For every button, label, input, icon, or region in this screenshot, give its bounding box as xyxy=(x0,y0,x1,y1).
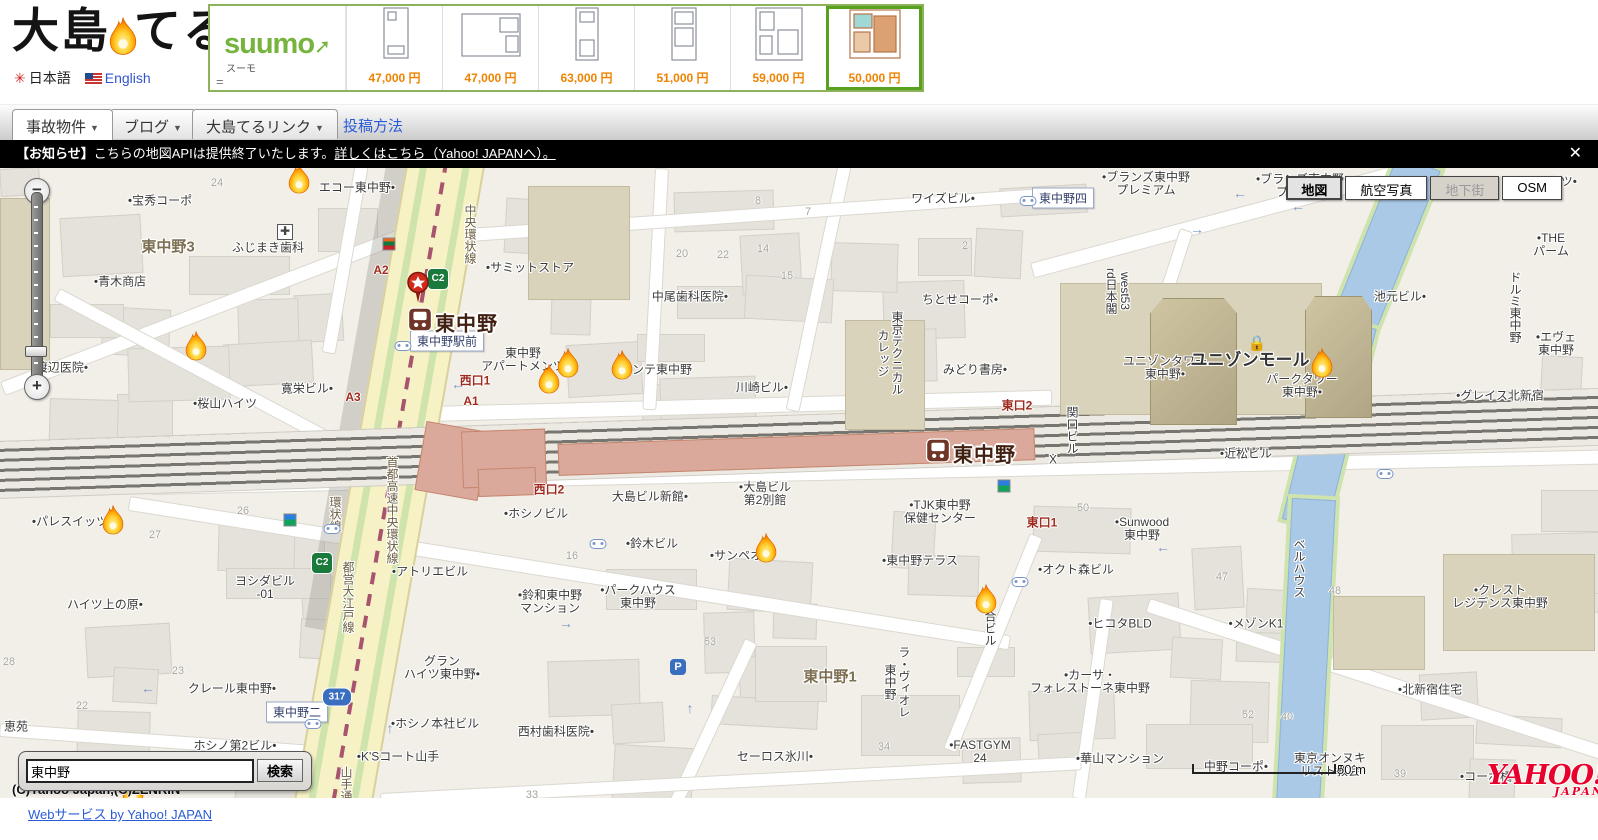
block-number: 47 xyxy=(1216,571,1228,583)
map-label: クレール東中野• xyxy=(188,683,276,696)
suumo-brand-text: suumo➚ xyxy=(224,28,330,61)
bus-stop-icon xyxy=(324,524,341,534)
station-exit-label: 東口2 xyxy=(1002,397,1033,414)
seven-eleven-icon xyxy=(383,238,396,251)
station-building xyxy=(478,467,537,497)
lock-icon: 🔒 xyxy=(1248,334,1267,352)
map-label: 山手通り xyxy=(339,766,353,798)
floorplan-thumbnail xyxy=(556,6,618,67)
map-label: ワイズビル• xyxy=(911,193,975,206)
chevron-down-icon: ▼ xyxy=(315,123,324,133)
suumo-listing-5[interactable]: 59,000 円 xyxy=(730,6,826,90)
bus-stop-icon xyxy=(1012,577,1029,587)
block-number: 34 xyxy=(878,741,890,753)
map-type-button-地図[interactable]: 地図 xyxy=(1286,176,1342,200)
map-label: 中央環状線 xyxy=(463,204,477,264)
map-label: 恵苑 xyxy=(4,721,28,734)
map-label: •パレスイッツ xyxy=(32,516,108,529)
map-label: 首都高速中央環状線 xyxy=(385,456,399,564)
block-number: 15 xyxy=(781,270,793,282)
metro-exit-icon: C2 xyxy=(311,552,333,574)
map-label: みどり書房• xyxy=(943,364,1007,377)
block-number: 7 xyxy=(805,206,811,218)
floorplan-thumbnail xyxy=(364,6,426,67)
block-number: 52 xyxy=(1242,709,1254,721)
us-flag-icon xyxy=(85,73,102,84)
station-exit-label: A1 xyxy=(463,394,478,408)
one-way-arrow-icon: → xyxy=(559,615,573,631)
one-way-arrow-icon: ← xyxy=(141,680,155,696)
map-label: エコー東中野• xyxy=(319,182,395,195)
building xyxy=(974,228,1024,280)
block-number: 50 xyxy=(1077,502,1089,514)
map-label: 都営大江戸線 xyxy=(341,561,355,633)
page-footer: Webサービス by Yahoo! JAPAN xyxy=(0,798,1598,840)
map-label: •グレイス北新宿 xyxy=(1456,390,1544,403)
chevron-down-icon: ▼ xyxy=(173,123,182,133)
block-number: 53 xyxy=(704,636,716,648)
block-number: 14 xyxy=(757,243,769,255)
listing-price: 50,000 円 xyxy=(848,69,900,86)
map-label: •東中野テラス xyxy=(882,555,958,568)
one-way-arrow-icon: ← xyxy=(1233,185,1247,201)
fire-incident-marker[interactable] xyxy=(536,363,563,399)
map-label: セーロス氷川• xyxy=(737,751,813,764)
oshimaland-page: 大島 てる ✳日本語English suumo➚ スーモ = 47,000 円4… xyxy=(0,0,1598,840)
map-label: •ホシノビル xyxy=(504,508,568,521)
bus-stop-icon xyxy=(1377,469,1394,479)
map-label: •鈴木ビル xyxy=(626,538,678,551)
station-exit-label: 西口2 xyxy=(534,481,565,498)
suumo-listing-3[interactable]: 63,000 円 xyxy=(538,6,634,90)
map-label: 東京テクニカルカレッジ xyxy=(876,311,904,395)
bus-stop-icon xyxy=(305,719,322,729)
fire-incident-marker[interactable] xyxy=(286,168,313,199)
suumo-logo[interactable]: suumo➚ スーモ = xyxy=(210,6,346,90)
lang-link-english[interactable]: English xyxy=(85,70,151,86)
train-station-icon xyxy=(926,439,950,468)
zoom-in-button[interactable]: + xyxy=(24,374,50,400)
one-way-arrow-icon: ← xyxy=(1156,539,1170,555)
block-number: 8 xyxy=(755,195,761,207)
logo-text-1: 大島 xyxy=(12,2,110,62)
map-label: •ホシノ本社ビル xyxy=(391,718,479,731)
map-label: •オクト森ビル xyxy=(1038,564,1114,577)
suumo-items: 47,000 円47,000 円63,000 円51,000 円59,000 円… xyxy=(346,6,922,90)
train-station-icon xyxy=(408,308,432,337)
map-label: ふじまき歯科 xyxy=(232,242,304,255)
block-number: 2 xyxy=(962,240,968,252)
station-name-label: 東中野 xyxy=(435,308,498,337)
notice-prefix: 【お知らせ】 xyxy=(16,146,94,161)
suumo-listing-6[interactable]: 50,000 円 xyxy=(826,6,922,90)
map-label: •ブランズ東中野プレミアム xyxy=(1102,171,1190,197)
one-way-arrow-icon: ← xyxy=(451,376,465,392)
map-label: •近松ビル xyxy=(1220,448,1272,461)
building xyxy=(1170,637,1223,681)
map-label: •大島ビル第2別館 xyxy=(739,481,791,507)
site-logo[interactable]: 大島 てる xyxy=(12,2,232,62)
map-label: •パークハウス東中野 xyxy=(600,584,676,610)
map-label: •ヒコタBLD xyxy=(1088,618,1152,631)
tab-投稿方法[interactable]: 投稿方法 xyxy=(330,109,416,139)
route-shield: 317 xyxy=(322,688,352,707)
map-type-button-OSM[interactable]: OSM xyxy=(1502,176,1562,200)
building xyxy=(1541,490,1598,532)
block-number: 24 xyxy=(211,177,223,189)
japan-sun-icon: ✳ xyxy=(14,70,26,86)
suumo-listing-1[interactable]: 47,000 円 xyxy=(346,6,442,90)
close-icon[interactable]: ✕ xyxy=(1569,140,1582,168)
map-label: ハイツ上の原• xyxy=(67,599,143,612)
station-exit-label: A3 xyxy=(345,390,360,404)
map-label: ちとせコーポ• xyxy=(922,294,998,307)
floorplan-thumbnail xyxy=(844,6,906,67)
familymart-icon xyxy=(284,514,297,527)
map-label: 東中野1 xyxy=(803,671,856,684)
map-label: west53rd日本閣 xyxy=(1104,268,1132,315)
tab-ブログ[interactable]: ブログ▼ xyxy=(110,109,196,139)
map-label: •TJK東中野保健センター xyxy=(904,499,976,525)
block-number: 23 xyxy=(172,665,184,677)
block-number: 16 xyxy=(566,550,578,562)
fire-incident-marker[interactable] xyxy=(609,349,636,385)
building xyxy=(611,702,665,745)
listing-price: 47,000 円 xyxy=(368,69,420,86)
yahoo-japan-logo[interactable]: YAHOO! JAPAN xyxy=(1487,760,1598,798)
map-label: 西村歯科医院• xyxy=(518,726,594,739)
map-label: •アトリエビル xyxy=(392,566,468,579)
map-label: •カーサ・フォレストーネ東中野 xyxy=(1030,669,1150,695)
block-number: 22 xyxy=(76,700,88,712)
map-label: •THEパーム xyxy=(1533,232,1569,258)
bus-stop-icon xyxy=(590,539,607,549)
map-search-box: 検索 xyxy=(18,751,312,791)
map-label: X xyxy=(1049,454,1057,467)
district-boxed-label: 東中野四 xyxy=(1032,188,1094,209)
map-label: 関口ビル xyxy=(1065,406,1079,454)
block-number: 28 xyxy=(3,656,15,668)
suumo-listing-4[interactable]: 51,000 円 xyxy=(634,6,730,90)
bus-stop-icon xyxy=(1020,196,1037,206)
hospital-icon: ✚ xyxy=(277,224,293,240)
fire-incident-marker[interactable] xyxy=(183,330,210,366)
map-label: 大島ビル新館• xyxy=(612,491,688,504)
map-label: •鈴和東中野マンション xyxy=(518,589,582,615)
suumo-brand-sub: スーモ xyxy=(226,60,256,75)
equals-mark: = xyxy=(216,74,224,89)
search-input[interactable] xyxy=(26,759,254,783)
tab-事故物件[interactable]: 事故物件▼ xyxy=(12,109,113,140)
listing-price: 59,000 円 xyxy=(752,69,804,86)
map-label: •K'Sコート山手 xyxy=(357,751,440,764)
map-label: •メゾンK1 xyxy=(1229,618,1284,631)
map-label: •エヴェ東中野 xyxy=(1536,331,1576,357)
map-type-button-航空写真[interactable]: 航空写真 xyxy=(1345,176,1427,200)
yahoo-webservice-link[interactable]: Webサービス by Yahoo! JAPAN xyxy=(28,804,212,823)
lang-link-japanese[interactable]: ✳日本語 xyxy=(14,70,71,86)
map-label: 中尾歯科医院• xyxy=(652,291,728,304)
one-way-arrow-icon: → xyxy=(1190,221,1204,237)
map-label: •クレストレジデンス東中野 xyxy=(1452,584,1548,610)
fire-incident-marker[interactable] xyxy=(1309,347,1336,383)
suumo-arrow-icon: ➚ xyxy=(314,36,330,58)
notice-link[interactable]: 詳しくはこちら（Yahoo! JAPANへ）。 xyxy=(334,146,555,161)
station-name-label: 東中野 xyxy=(953,439,1016,468)
block-number: 26 xyxy=(237,505,249,517)
map-label: •サミットストア xyxy=(486,262,574,275)
notice-bar: 【お知らせ】こちらの地図APIは提供終了いたします。詳しくはこちら（Yahoo!… xyxy=(0,140,1598,168)
map-label: ヨシダビル-01 xyxy=(235,575,295,601)
station-exit-label: A2 xyxy=(373,263,388,277)
station-exit-label: 東口1 xyxy=(1027,514,1058,531)
suumo-ad-banner[interactable]: suumo➚ スーモ = 47,000 円47,000 円63,000 円51,… xyxy=(208,4,924,92)
map-label: ベルハウス xyxy=(1292,538,1306,598)
building xyxy=(830,242,898,293)
map-label: 寛栄ビル• xyxy=(281,383,333,396)
block-number: 27 xyxy=(149,529,161,541)
bus-stop-icon xyxy=(395,341,412,351)
map-label: ユニゾンモール xyxy=(1191,354,1310,367)
building xyxy=(223,340,314,388)
parking-icon: P xyxy=(670,659,686,675)
search-button[interactable]: 検索 xyxy=(257,759,303,782)
block-number: 40 xyxy=(1281,711,1293,723)
landmark-building xyxy=(528,186,630,300)
tab-大島てるリンク[interactable]: 大島てるリンク▼ xyxy=(192,109,338,139)
map-label: ラ・ヴィオレ東中野 xyxy=(883,646,911,718)
map-label: •華山マンション xyxy=(1076,753,1164,766)
map-label: •FASTGYM24 xyxy=(949,739,1011,765)
listing-price: 63,000 円 xyxy=(560,69,612,86)
zoom-control: − + xyxy=(24,178,48,398)
map-label: ドルミ東中野 xyxy=(1508,271,1522,343)
map-label: •桜山ハイツ xyxy=(193,398,257,411)
fire-incident-marker[interactable] xyxy=(973,583,1000,619)
map-label: •宝秀コーポ xyxy=(128,195,192,208)
one-way-arrow-icon: ↑ xyxy=(687,700,694,716)
block-number: 48 xyxy=(1329,585,1341,597)
notice-text: こちらの地図APIは提供終了いたします。 xyxy=(94,146,335,161)
landmark-building xyxy=(1333,596,1425,670)
floorplan-thumbnail xyxy=(460,6,522,67)
map-label: グランハイツ東中野• xyxy=(404,655,480,681)
chevron-down-icon: ▼ xyxy=(90,123,99,133)
fire-incident-marker[interactable] xyxy=(100,504,127,540)
map-label: •北新宿住宅 xyxy=(1398,684,1462,697)
block-number: 22 xyxy=(717,249,729,261)
map-label: •青木商店 xyxy=(94,276,146,289)
floorplan-thumbnail xyxy=(748,6,810,67)
map-label: 川崎ビル• xyxy=(736,382,788,395)
listing-price: 47,000 円 xyxy=(464,69,516,86)
map-label: 池元ビル• xyxy=(1374,291,1426,304)
floorplan-thumbnail xyxy=(652,6,714,67)
map-label: 東中野3 xyxy=(141,241,194,254)
map-scale-bar xyxy=(1192,764,1336,774)
block-number: 39 xyxy=(1394,768,1406,780)
familymart-icon xyxy=(998,480,1011,493)
zoom-slider-handle[interactable] xyxy=(25,346,47,357)
block-number: 33 xyxy=(526,789,538,798)
main-nav-bar: 事故物件▼ブログ▼大島てるリンク▼投稿方法 xyxy=(0,104,1598,141)
map-type-switcher: 地図航空写真地下街OSM xyxy=(1286,176,1562,200)
map-type-button-地下街: 地下街 xyxy=(1430,176,1499,200)
listing-price: 51,000 円 xyxy=(656,69,708,86)
map-canvas[interactable]: − + 地図航空写真地下街OSM 検索 (C)Yahoo Japan,(C)ZE… xyxy=(0,168,1598,798)
building xyxy=(59,214,143,277)
block-number: 20 xyxy=(676,248,688,260)
one-way-arrow-icon: ↑ xyxy=(387,720,394,736)
selected-property-pin[interactable] xyxy=(405,272,431,309)
one-way-arrow-icon: ← xyxy=(1291,198,1305,214)
language-switcher: ✳日本語English xyxy=(14,68,165,88)
suumo-listing-2[interactable]: 47,000 円 xyxy=(442,6,538,90)
fire-incident-marker[interactable] xyxy=(753,532,780,568)
map-scale-label: 50 m xyxy=(1337,762,1366,777)
